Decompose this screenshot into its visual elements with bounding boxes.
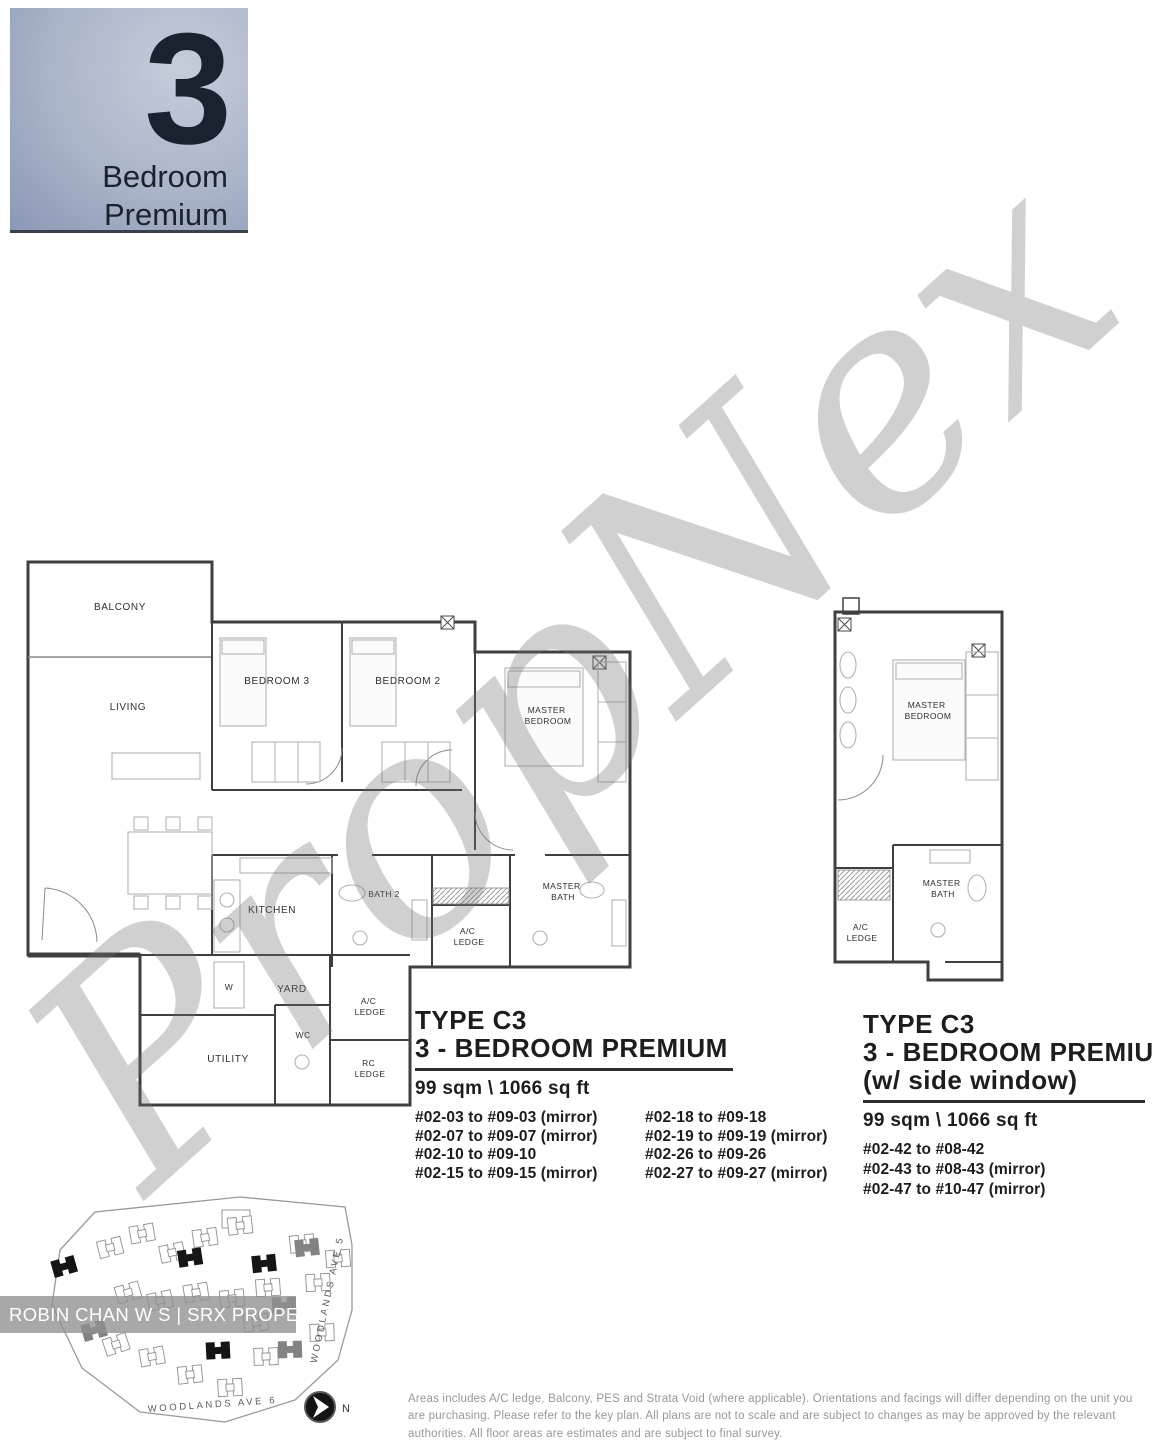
north-label: N bbox=[342, 1403, 350, 1415]
unit-range: #02-43 to #08-43 (mirror) bbox=[863, 1160, 1151, 1180]
label-bath2: BATH 2 bbox=[368, 889, 400, 899]
label-side-master-bedroom: MASTER BEDROOM bbox=[905, 700, 952, 721]
label-side-master-bath: MASTER BATH bbox=[923, 878, 964, 899]
type-title-line2: 3 - BEDROOM PREMIUM bbox=[863, 1038, 1151, 1066]
type-block-side-window: TYPE C3 3 - BEDROOM PREMIUM (w/ side win… bbox=[863, 1010, 1151, 1200]
badge-line-2: Premium bbox=[104, 196, 228, 234]
unit-range: #02-10 to #09-10 bbox=[415, 1146, 645, 1165]
label-wc: WC bbox=[296, 1030, 311, 1040]
title-rule bbox=[863, 1100, 1145, 1103]
label-side-ac-ledge: A/C LEDGE bbox=[847, 922, 878, 943]
unit-list-col2: #02-18 to #09-18 #02-19 to #09-19 (mirro… bbox=[645, 1109, 828, 1183]
type-title-line1: TYPE C3 bbox=[415, 1006, 840, 1034]
type-title-line3: (w/ side window) bbox=[863, 1066, 1151, 1094]
label-master-bedroom: MASTER BEDROOM bbox=[525, 705, 572, 726]
label-rc-ledge: RC LEDGE bbox=[355, 1058, 386, 1079]
type-area: 99 sqm \ 1066 sq ft bbox=[415, 1078, 840, 1100]
unit-list-col1: #02-03 to #09-03 (mirror) #02-07 to #09-… bbox=[415, 1109, 645, 1183]
unit-type-badge: 3 Bedroom Premium bbox=[10, 8, 248, 233]
unit-range: #02-07 to #09-07 (mirror) bbox=[415, 1128, 645, 1147]
unit-range: #02-03 to #09-03 (mirror) bbox=[415, 1109, 645, 1128]
unit-range: #02-18 to #09-18 bbox=[645, 1109, 828, 1128]
badge-line-1: Bedroom bbox=[102, 158, 228, 196]
label-washer: W bbox=[225, 982, 233, 992]
type-area: 99 sqm \ 1066 sq ft bbox=[863, 1110, 1151, 1132]
unit-list: #02-42 to #08-42 #02-43 to #08-43 (mirro… bbox=[863, 1140, 1151, 1200]
title-rule bbox=[415, 1068, 733, 1071]
unit-range: #02-42 to #08-42 bbox=[863, 1140, 1151, 1160]
type-block-main: TYPE C3 3 - BEDROOM PREMIUM 99 sqm \ 106… bbox=[415, 1006, 840, 1183]
label-kitchen: KITCHEN bbox=[248, 905, 296, 916]
side-unit-doors bbox=[838, 755, 883, 800]
agent-overlay-bar: ROBIN CHAN W S | SRX PROPERTY bbox=[0, 1296, 296, 1333]
label-utility: UTILITY bbox=[207, 1054, 248, 1065]
label-balcony: BALCONY bbox=[94, 602, 146, 613]
label-ac-ledge-master: A/C LEDGE bbox=[454, 926, 485, 947]
disclaimer-text: Areas includes A/C ledge, Balcony, PES a… bbox=[408, 1391, 1150, 1443]
unit-range: #02-47 to #10-47 (mirror) bbox=[863, 1180, 1151, 1200]
page: { "colors": { "badge_from": "#c6cdda", "… bbox=[0, 0, 1152, 1440]
type-title-line2: 3 - BEDROOM PREMIUM bbox=[415, 1034, 840, 1062]
label-living: LIVING bbox=[110, 702, 146, 713]
type-title-line1: TYPE C3 bbox=[863, 1010, 1151, 1038]
unit-range: #02-19 to #09-19 (mirror) bbox=[645, 1128, 828, 1147]
unit-range: #02-27 to #09-27 (mirror) bbox=[645, 1165, 828, 1184]
agent-overlay-text: ROBIN CHAN W S | SRX PROPERTY bbox=[9, 1304, 337, 1326]
label-master-bath: MASTER BATH bbox=[543, 881, 584, 902]
label-ac-ledge-yard: A/C LEDGE bbox=[355, 996, 386, 1017]
north-arrow-icon bbox=[305, 1392, 335, 1422]
label-yard: YARD bbox=[277, 984, 306, 995]
badge-number: 3 bbox=[144, 22, 228, 158]
unit-range: #02-15 to #09-15 (mirror) bbox=[415, 1165, 645, 1184]
unit-range: #02-26 to #09-26 bbox=[645, 1146, 828, 1165]
label-bedroom2: BEDROOM 2 bbox=[375, 676, 440, 687]
label-bedroom3: BEDROOM 3 bbox=[244, 676, 309, 687]
